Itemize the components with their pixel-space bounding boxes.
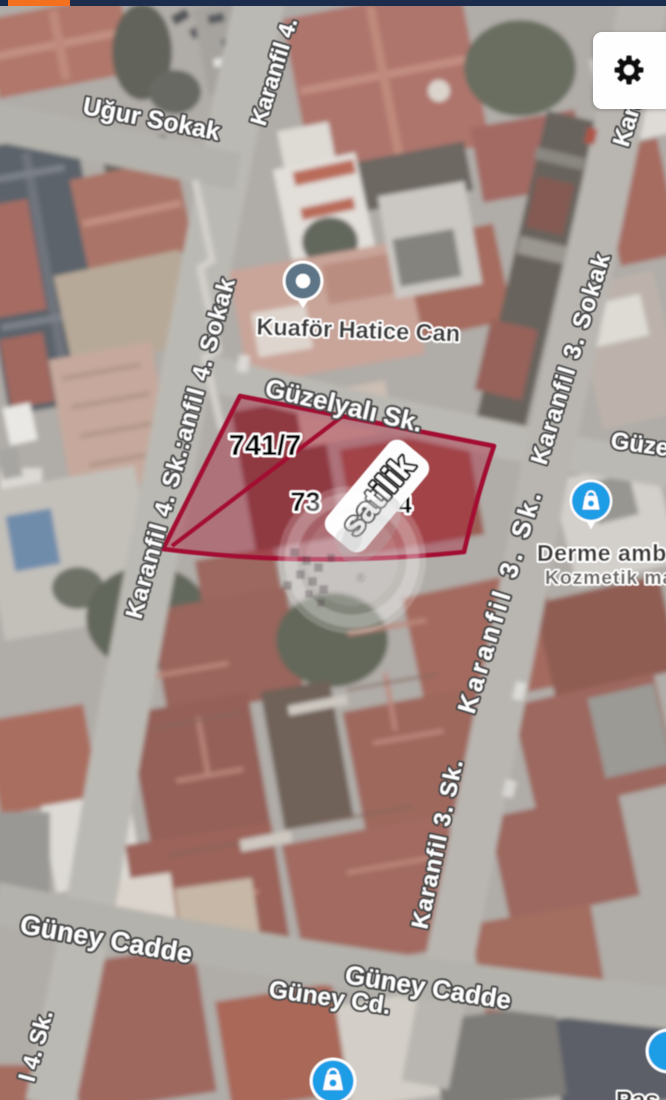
- svg-text:Derme amb: Derme amb: [537, 540, 666, 566]
- svg-text:®: ®: [356, 570, 366, 585]
- svg-text:Pas: Pas: [616, 1087, 659, 1100]
- svg-text:741/7: 741/7: [229, 430, 302, 462]
- svg-text:Kozmetik mağ: Kozmetik mağ: [545, 567, 666, 589]
